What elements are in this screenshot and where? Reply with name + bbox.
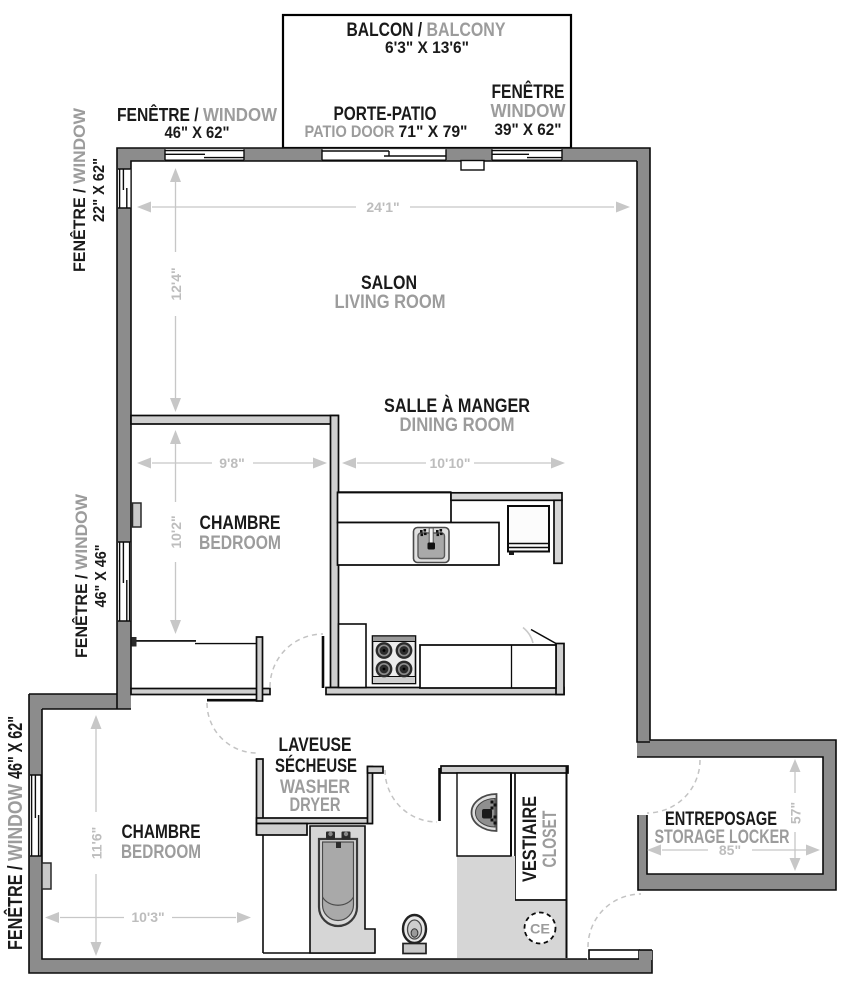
svg-text:57": 57" [788,802,804,824]
svg-text:FENÊTRE / WINDOW: FENÊTRE / WINDOW [72,493,91,658]
svg-text:11'6": 11'6" [89,827,105,860]
svg-text:CHAMBRE: CHAMBRE [200,513,281,534]
svg-text:LAVEUSE: LAVEUSE [279,735,352,756]
svg-text:LIVING ROOM: LIVING ROOM [335,292,446,313]
svg-text:46" X 62": 46" X 62" [165,123,230,142]
svg-text:BEDROOM: BEDROOM [121,842,201,863]
svg-text:6'3" X 13'6": 6'3" X 13'6" [385,38,469,57]
svg-text:FENÊTRE / WINDOW 46" X 62": FENÊTRE / WINDOW 46" X 62" [3,716,27,950]
svg-text:46" X 46": 46" X 46" [93,545,110,608]
svg-text:CHAMBRE: CHAMBRE [122,822,201,843]
svg-text:VESTIAIRE: VESTIAIRE [520,796,541,882]
svg-text:CE: CE [530,921,550,937]
svg-text:FENÊTRE / WINDOW: FENÊTRE / WINDOW [70,107,89,272]
svg-text:10'10": 10'10" [429,455,470,471]
svg-text:39" X 62": 39" X 62" [495,120,562,139]
svg-text:SÉCHEUSE: SÉCHEUSE [275,755,357,777]
svg-text:85": 85" [719,842,741,858]
svg-text:BEDROOM: BEDROOM [199,533,281,554]
svg-text:22" X 62": 22" X 62" [91,158,108,222]
svg-text:SALLE À MANGER: SALLE À MANGER [384,395,530,417]
svg-text:PATIO DOOR 71" X 79": PATIO DOOR 71" X 79" [305,122,468,141]
svg-text:9'8": 9'8" [219,455,245,471]
svg-text:FENÊTRE / WINDOW: FENÊTRE / WINDOW [117,104,277,125]
svg-text:SALON: SALON [361,273,417,294]
svg-text:DRYER: DRYER [290,795,341,816]
svg-text:12'4": 12'4" [168,267,184,300]
svg-text:FENÊTRE: FENÊTRE [492,81,565,103]
svg-text:10'2": 10'2" [168,515,184,548]
svg-text:24'1": 24'1" [366,199,399,215]
svg-text:CLOSET: CLOSET [540,810,561,867]
svg-text:10'3": 10'3" [131,909,164,925]
svg-text:DINING ROOM: DINING ROOM [400,415,515,436]
svg-text:WINDOW: WINDOW [491,101,566,121]
